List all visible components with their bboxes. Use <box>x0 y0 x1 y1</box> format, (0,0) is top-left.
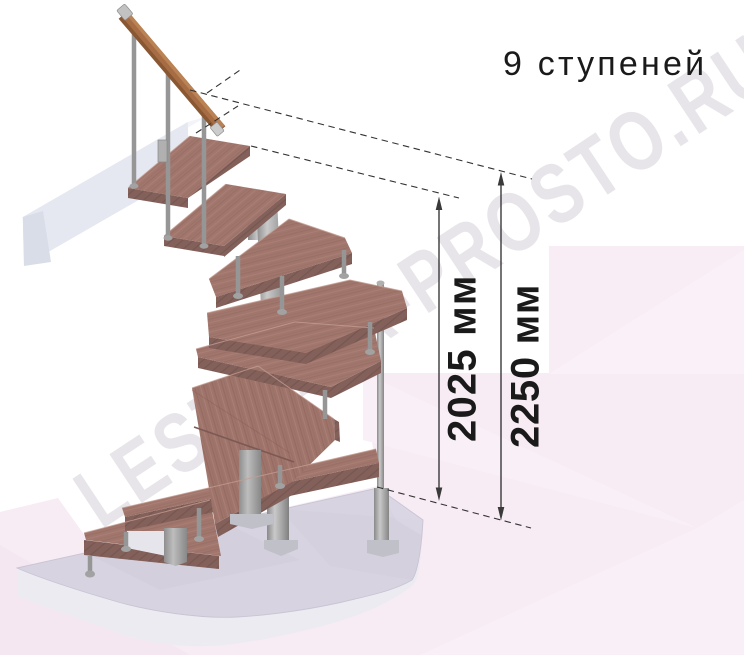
svg-text:2025 мм: 2025 мм <box>441 274 485 442</box>
svg-text:2250 мм: 2250 мм <box>504 284 548 448</box>
svg-text:9 ступеней: 9 ступеней <box>503 45 707 83</box>
